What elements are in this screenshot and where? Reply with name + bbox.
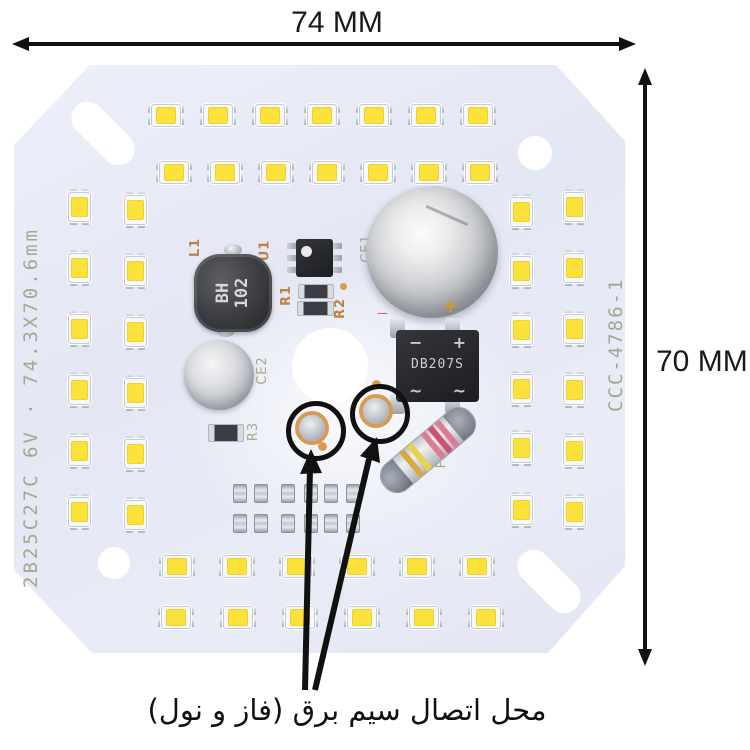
- capacitor-vent-line: [425, 205, 468, 226]
- polarity-minus-mark: −−: [377, 308, 386, 320]
- bridge-ac-mark: ~: [409, 381, 422, 400]
- ic-lead: [332, 255, 342, 261]
- electrolytic-capacitor-large: [366, 186, 498, 318]
- height-arrowhead-top: [638, 68, 652, 85]
- smd-capacitor: [304, 514, 318, 533]
- width-arrowhead-right: [619, 37, 636, 51]
- smd-cluster: [0, 0, 750, 750]
- annotation-circle-left: [286, 401, 346, 461]
- smd-capacitor: [346, 514, 360, 533]
- inductor-marking-line1: BH: [214, 283, 233, 303]
- width-dimension-label: 74 MM: [187, 6, 487, 40]
- smd-capacitor: [304, 484, 318, 503]
- inductor-marking-line2: 102: [233, 278, 252, 309]
- label-r3: R3: [246, 422, 261, 441]
- smd-capacitor: [233, 514, 247, 533]
- smd-capacitor: [233, 484, 247, 503]
- bridge-part-number: DB207S: [396, 357, 479, 372]
- polarity-plus-mark: +: [444, 294, 457, 320]
- bridge-rectifier: − + DB207S ~ ~: [396, 330, 479, 402]
- ic-lead: [332, 267, 342, 273]
- caption-text: محل اتصال سیم برق (فاز و نول): [0, 693, 694, 727]
- smd-capacitor: [254, 514, 268, 533]
- silkscreen-dot: [340, 283, 347, 290]
- inductor-marking: BH 102: [194, 254, 272, 332]
- chip-resistor-r1: [298, 284, 334, 299]
- inductor: BH 102: [194, 254, 272, 332]
- smd-capacitor: [281, 484, 295, 503]
- ic-lead: [332, 243, 342, 249]
- chip-resistor-r2: [297, 301, 334, 316]
- smd-capacitor: [324, 484, 338, 503]
- chip-resistor-r3: [208, 424, 244, 442]
- driver-ic: [296, 239, 333, 277]
- electrolytic-capacitor-small: [184, 340, 254, 410]
- smd-capacitor: [324, 514, 338, 533]
- led-module-photo: 2B25C27C 6V · 74.3X70.6mm CCC-4786-1 L1 …: [0, 0, 750, 750]
- width-dimension-line: [26, 42, 620, 46]
- height-dimension-line: [643, 84, 647, 650]
- bridge-ac-mark: ~: [453, 381, 466, 400]
- bridge-minus-mark: −: [409, 333, 422, 352]
- smd-capacitor: [281, 514, 295, 533]
- width-arrowhead-left: [12, 37, 29, 51]
- ic-logo: [301, 246, 312, 257]
- annotation-circle-right: [350, 384, 410, 444]
- bridge-plus-mark: +: [453, 333, 466, 352]
- label-ce2: CE2: [255, 356, 270, 385]
- label-r2: R2: [333, 298, 348, 319]
- label-r1: R1: [279, 285, 294, 306]
- smd-capacitor: [254, 484, 268, 503]
- smd-capacitor: [346, 484, 360, 503]
- height-dimension-label: 70 MM: [656, 345, 748, 379]
- height-arrowhead-bottom: [638, 649, 652, 666]
